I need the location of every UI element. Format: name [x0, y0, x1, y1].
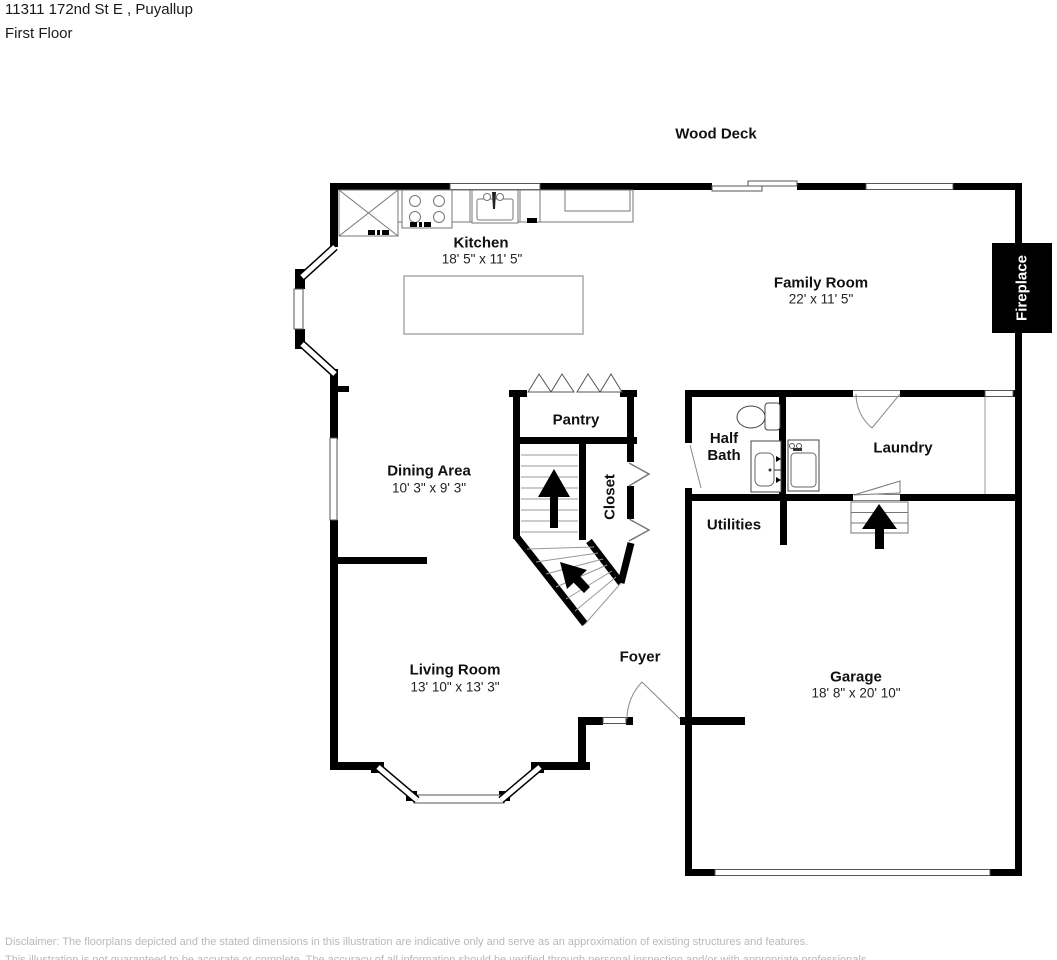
laundry-door-leaf: [872, 394, 900, 428]
up-arrow-stem: [875, 529, 884, 549]
window: [450, 184, 540, 190]
utilities-label: Utilities: [707, 517, 761, 534]
dining-area-dims: 10' 3" x 9' 3": [392, 481, 466, 496]
stair-tread: [527, 547, 594, 549]
disclaimer-line1: Disclaimer: The floorplans depicted and …: [5, 936, 808, 948]
burner: [434, 196, 445, 207]
garage-label: Garage: [830, 669, 882, 686]
garage-door: [715, 870, 990, 876]
burner: [434, 212, 445, 223]
tub-faucet-handle: [790, 444, 795, 449]
bifold-panel: [600, 374, 622, 392]
wall-segment: [627, 486, 634, 519]
window: [378, 767, 417, 800]
stairs-up: [521, 455, 578, 532]
fireplace-label: Fireplace: [1014, 255, 1031, 321]
up-arrow-icon: [538, 469, 570, 497]
half-bath-label: Half Bath: [698, 430, 750, 464]
family-room-dims: 22' x 11' 5": [789, 292, 854, 307]
door-ajar-icon: [629, 463, 649, 486]
vanity-drain: [769, 469, 772, 472]
window: [302, 247, 335, 277]
wall-segment: [685, 494, 1015, 501]
toilet-bowl: [737, 406, 765, 428]
wall-segment: [680, 717, 745, 725]
laundry-label: Laundry: [873, 440, 932, 457]
garage-dims: 18' 8" x 20' 10": [811, 686, 900, 701]
pantry-label: Pantry: [553, 412, 600, 429]
living-room-label: Living Room: [410, 662, 501, 679]
kitchen-label: Kitchen: [453, 235, 508, 252]
wall-segment: [578, 717, 603, 725]
wall-segment: [513, 390, 520, 539]
cased-opening: [985, 391, 1013, 397]
closet-label: Closet: [602, 474, 619, 520]
sliding-door: [712, 186, 762, 191]
floorplan-page: 11311 172nd St E , Puyallup First Floor …: [0, 0, 1057, 960]
door-opening: [853, 391, 900, 397]
burner: [410, 196, 421, 207]
stair-tread: [585, 583, 621, 624]
bifold-panel: [528, 374, 551, 392]
door-opening: [853, 495, 900, 501]
wall-segment: [953, 183, 1022, 190]
wall-segment: [330, 183, 338, 247]
floorplan-drawing: [0, 0, 1057, 960]
wood-deck-label: Wood Deck: [675, 126, 756, 143]
faucet-handle: [484, 194, 491, 201]
wall-segment: [579, 440, 586, 540]
window: [414, 795, 504, 803]
family-room-label: Family Room: [774, 275, 868, 292]
wall-segment: [685, 390, 1015, 397]
tub-faucet-handle: [797, 444, 802, 449]
window: [501, 767, 540, 800]
dining-area-label: Dining Area: [387, 463, 471, 480]
tub-faucet: [793, 448, 802, 451]
wall-segment: [330, 183, 450, 190]
faucet-handle: [497, 194, 504, 201]
garage-entry-door: [854, 481, 900, 495]
wall-segment: [330, 762, 378, 770]
window: [330, 438, 337, 520]
up-arrow-stem: [550, 497, 558, 528]
sliding-door: [748, 181, 797, 186]
stair-tread: [536, 553, 598, 562]
window: [302, 344, 335, 374]
wall-segment: [337, 557, 427, 564]
living-room-dims: 13' 10" x 13' 3": [410, 680, 499, 695]
wall-segment: [337, 386, 349, 392]
window: [866, 184, 953, 190]
wall-segment: [330, 369, 338, 439]
floor-name: First Floor: [5, 22, 193, 46]
toilet-tank: [765, 403, 780, 430]
window: [603, 718, 626, 724]
front-door-leaf: [642, 682, 680, 719]
wall-segment: [513, 437, 637, 444]
laundry-door-swing: [856, 394, 872, 428]
wall-segment: [990, 869, 1022, 876]
kitchen-dims: 18' 5" x 11' 5": [442, 252, 523, 267]
garage-steps: [851, 502, 908, 549]
wall-segment: [780, 501, 787, 545]
wall-segment: [330, 520, 338, 763]
bifold-panel: [577, 374, 600, 392]
bifold-panel: [551, 374, 574, 392]
burner: [410, 212, 421, 223]
front-door-swing: [627, 682, 642, 719]
disclaimer-line2: This illustration is not guaranteed to b…: [5, 954, 869, 960]
kitchen-island: [404, 276, 583, 334]
plan-header: 11311 172nd St E , Puyallup First Floor: [5, 0, 193, 46]
counter-section: [565, 190, 630, 211]
wall-segment: [621, 543, 631, 583]
wall-segment: [627, 390, 634, 462]
door-ajar-icon: [629, 519, 649, 541]
laundry-tub-basin: [791, 453, 816, 487]
wall-segment: [797, 183, 866, 190]
pantry-bifold-doors: [528, 374, 622, 392]
address-text: 11311 172nd St E , Puyallup: [5, 0, 193, 22]
wall-segment: [540, 183, 712, 190]
foyer-label: Foyer: [620, 649, 661, 666]
window: [294, 289, 303, 329]
